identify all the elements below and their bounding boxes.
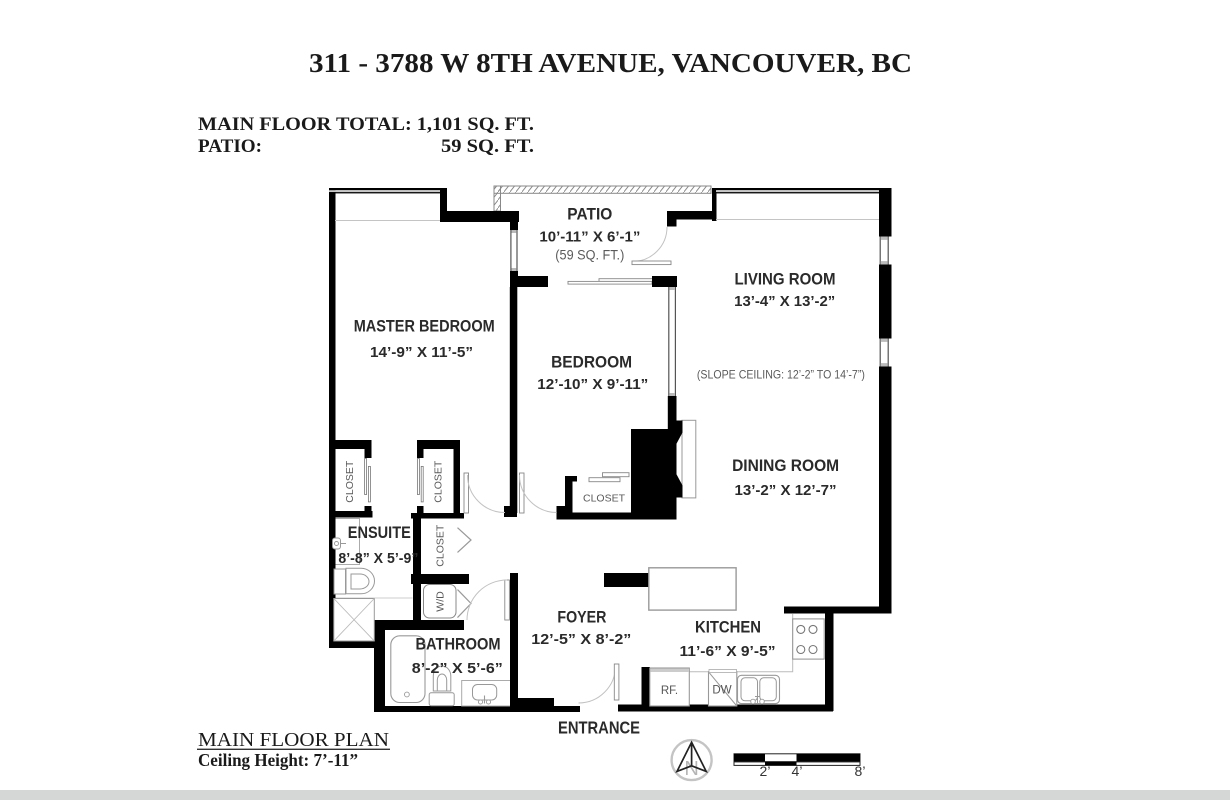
svg-text:KITCHEN: KITCHEN [695,618,761,637]
svg-text:10’-11” X 6’-1”: 10’-11” X 6’-1” [539,230,640,246]
svg-text:CLOSET: CLOSET [583,493,626,505]
svg-text:PATIO: PATIO [567,205,612,224]
svg-text:8’-8” X 5’-9”: 8’-8” X 5’-9” [338,551,418,567]
svg-text:Ceiling Height: 7’-11”: Ceiling Height: 7’-11” [198,750,358,770]
svg-text:MAIN FLOOR PLAN: MAIN FLOOR PLAN [198,729,389,751]
svg-text:311 - 3788 W 8TH AVENUE, VANCO: 311 - 3788 W 8TH AVENUE, VANCOUVER, BC [309,47,912,78]
svg-text:2’: 2’ [760,763,771,779]
svg-text:(SLOPE CEILING: 12’-2” TO 14’: (SLOPE CEILING: 12’-2” TO 14’-7”) [697,368,865,382]
svg-text:13’-4” X 13’-2”: 13’-4” X 13’-2” [734,294,835,310]
svg-text:ENTRANCE: ENTRANCE [558,718,640,738]
svg-text:CLOSET: CLOSET [435,524,447,567]
svg-text:FOYER: FOYER [557,608,606,627]
svg-text:MASTER BEDROOM: MASTER BEDROOM [354,317,495,336]
svg-text:11’-6” X 9’-5”: 11’-6” X 9’-5” [680,644,776,660]
svg-text:DINING ROOM: DINING ROOM [732,456,839,475]
svg-text:MAIN FLOOR TOTAL: 1,101 SQ. FT: MAIN FLOOR TOTAL: 1,101 SQ. FT. [198,114,534,135]
svg-text:59 SQ. FT.: 59 SQ. FT. [441,136,534,157]
svg-text:8’: 8’ [855,763,866,779]
svg-text:BEDROOM: BEDROOM [551,353,632,372]
svg-text:PATIO:: PATIO: [198,136,262,157]
svg-text:LIVING ROOM: LIVING ROOM [735,270,836,289]
svg-text:BATHROOM: BATHROOM [416,635,501,654]
svg-text:CLOSET: CLOSET [433,460,445,503]
svg-text:(59 SQ. FT.): (59 SQ. FT.) [555,248,624,263]
svg-text:14’-9” X 11’-5”: 14’-9” X 11’-5” [370,345,473,361]
svg-text:CLOSET: CLOSET [344,460,356,503]
svg-text:W/D: W/D [435,591,447,612]
svg-text:4’: 4’ [792,763,803,779]
svg-text:8’-2” X 5’-6”: 8’-2” X 5’-6” [412,661,503,677]
svg-text:RF.: RF. [661,685,678,697]
svg-text:ENSUITE: ENSUITE [348,523,411,542]
svg-text:12’-10” X 9’-11”: 12’-10” X 9’-11” [537,377,648,393]
svg-text:DW: DW [712,685,731,697]
svg-text:13’-2” X 12’-7”: 13’-2” X 12’-7” [735,483,837,499]
svg-text:12’-5” X 8’-2”: 12’-5” X 8’-2” [531,632,631,648]
